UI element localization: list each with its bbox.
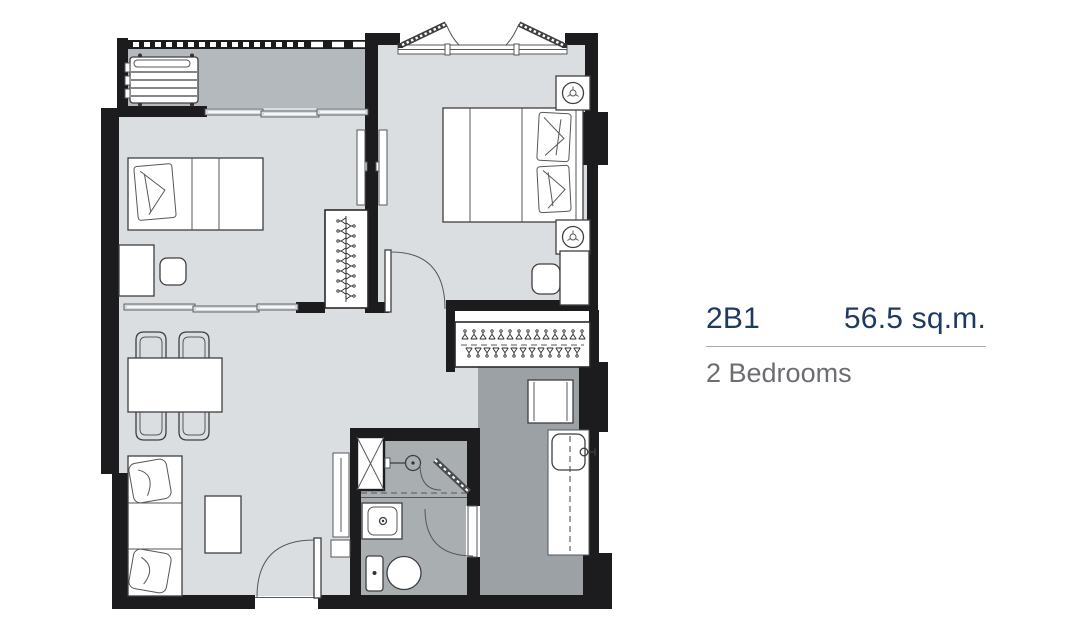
unit-header: 2B1 56.5 sq.m. [706,302,986,335]
toilet [366,556,421,591]
bedroom2-wardrobe [325,210,368,308]
tv-panel-bedroom2 [357,130,367,205]
tv-console-living [331,453,350,557]
coffee-table [205,496,241,553]
ac-condenser-unit [125,54,198,107]
floor-plan [95,20,635,620]
master-bed [443,108,583,222]
refrigerator [528,380,573,423]
unit-code: 2B1 [706,302,760,335]
unit-info-panel: 2B1 56.5 sq.m. 2 Bedrooms [706,302,986,389]
balcony-railing [128,40,368,49]
foyer-wardrobe [455,322,590,367]
unit-area: 56.5 sq.m. [844,302,986,335]
master-desk [560,251,589,305]
bedroom2-stool [160,258,186,285]
closet-niche [446,311,590,322]
master-bedside-stool [532,264,560,294]
divider-line [706,346,986,347]
bedroom2-bed [128,158,263,230]
dining-table [128,358,222,412]
unit-type: 2 Bedrooms [706,359,986,389]
wash-basin [362,503,402,539]
utility-shaft [357,437,384,490]
ac-unit-top-icon [556,76,590,110]
kitchen-counter [548,430,595,555]
ac-unit-mid-icon [556,220,590,254]
sofa [128,456,182,596]
bedroom2-desk [119,245,154,296]
floor-plan-page: 2B1 56.5 sq.m. 2 Bedrooms [0,0,1080,640]
casement-windows [398,24,567,55]
